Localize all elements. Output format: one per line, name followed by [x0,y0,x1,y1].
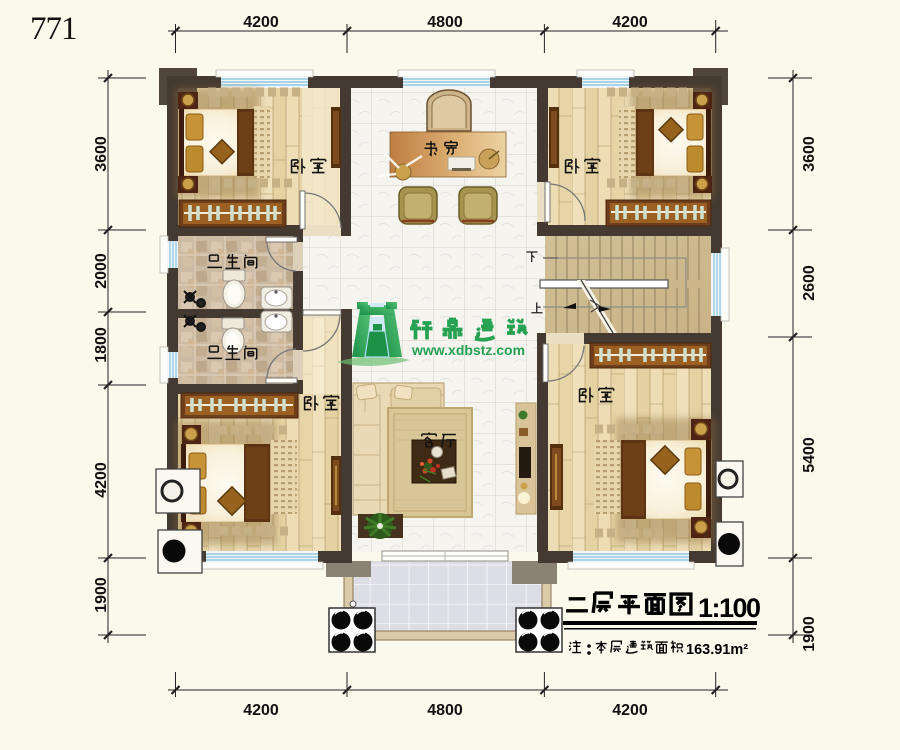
svg-text:2600: 2600 [801,265,818,301]
svg-text:4200: 4200 [612,702,648,719]
svg-text:1800: 1800 [93,327,110,363]
svg-text:1:100: 1:100 [698,593,760,623]
svg-text:4200: 4200 [93,462,110,498]
svg-text:4800: 4800 [427,14,463,31]
svg-text:www.xdbstz.com: www.xdbstz.com [411,342,525,358]
svg-text:771: 771 [30,11,77,47]
svg-text:4200: 4200 [243,702,279,719]
svg-text:163.91m²: 163.91m² [686,642,748,658]
svg-text:2000: 2000 [93,253,110,289]
svg-text:4200: 4200 [612,14,648,31]
svg-text:1900: 1900 [801,616,818,652]
svg-text:1900: 1900 [93,577,110,613]
svg-text:3600: 3600 [93,136,110,172]
svg-text:4800: 4800 [427,702,463,719]
svg-text:3600: 3600 [801,136,818,172]
svg-text:5400: 5400 [801,437,818,473]
svg-text:4200: 4200 [243,14,279,31]
